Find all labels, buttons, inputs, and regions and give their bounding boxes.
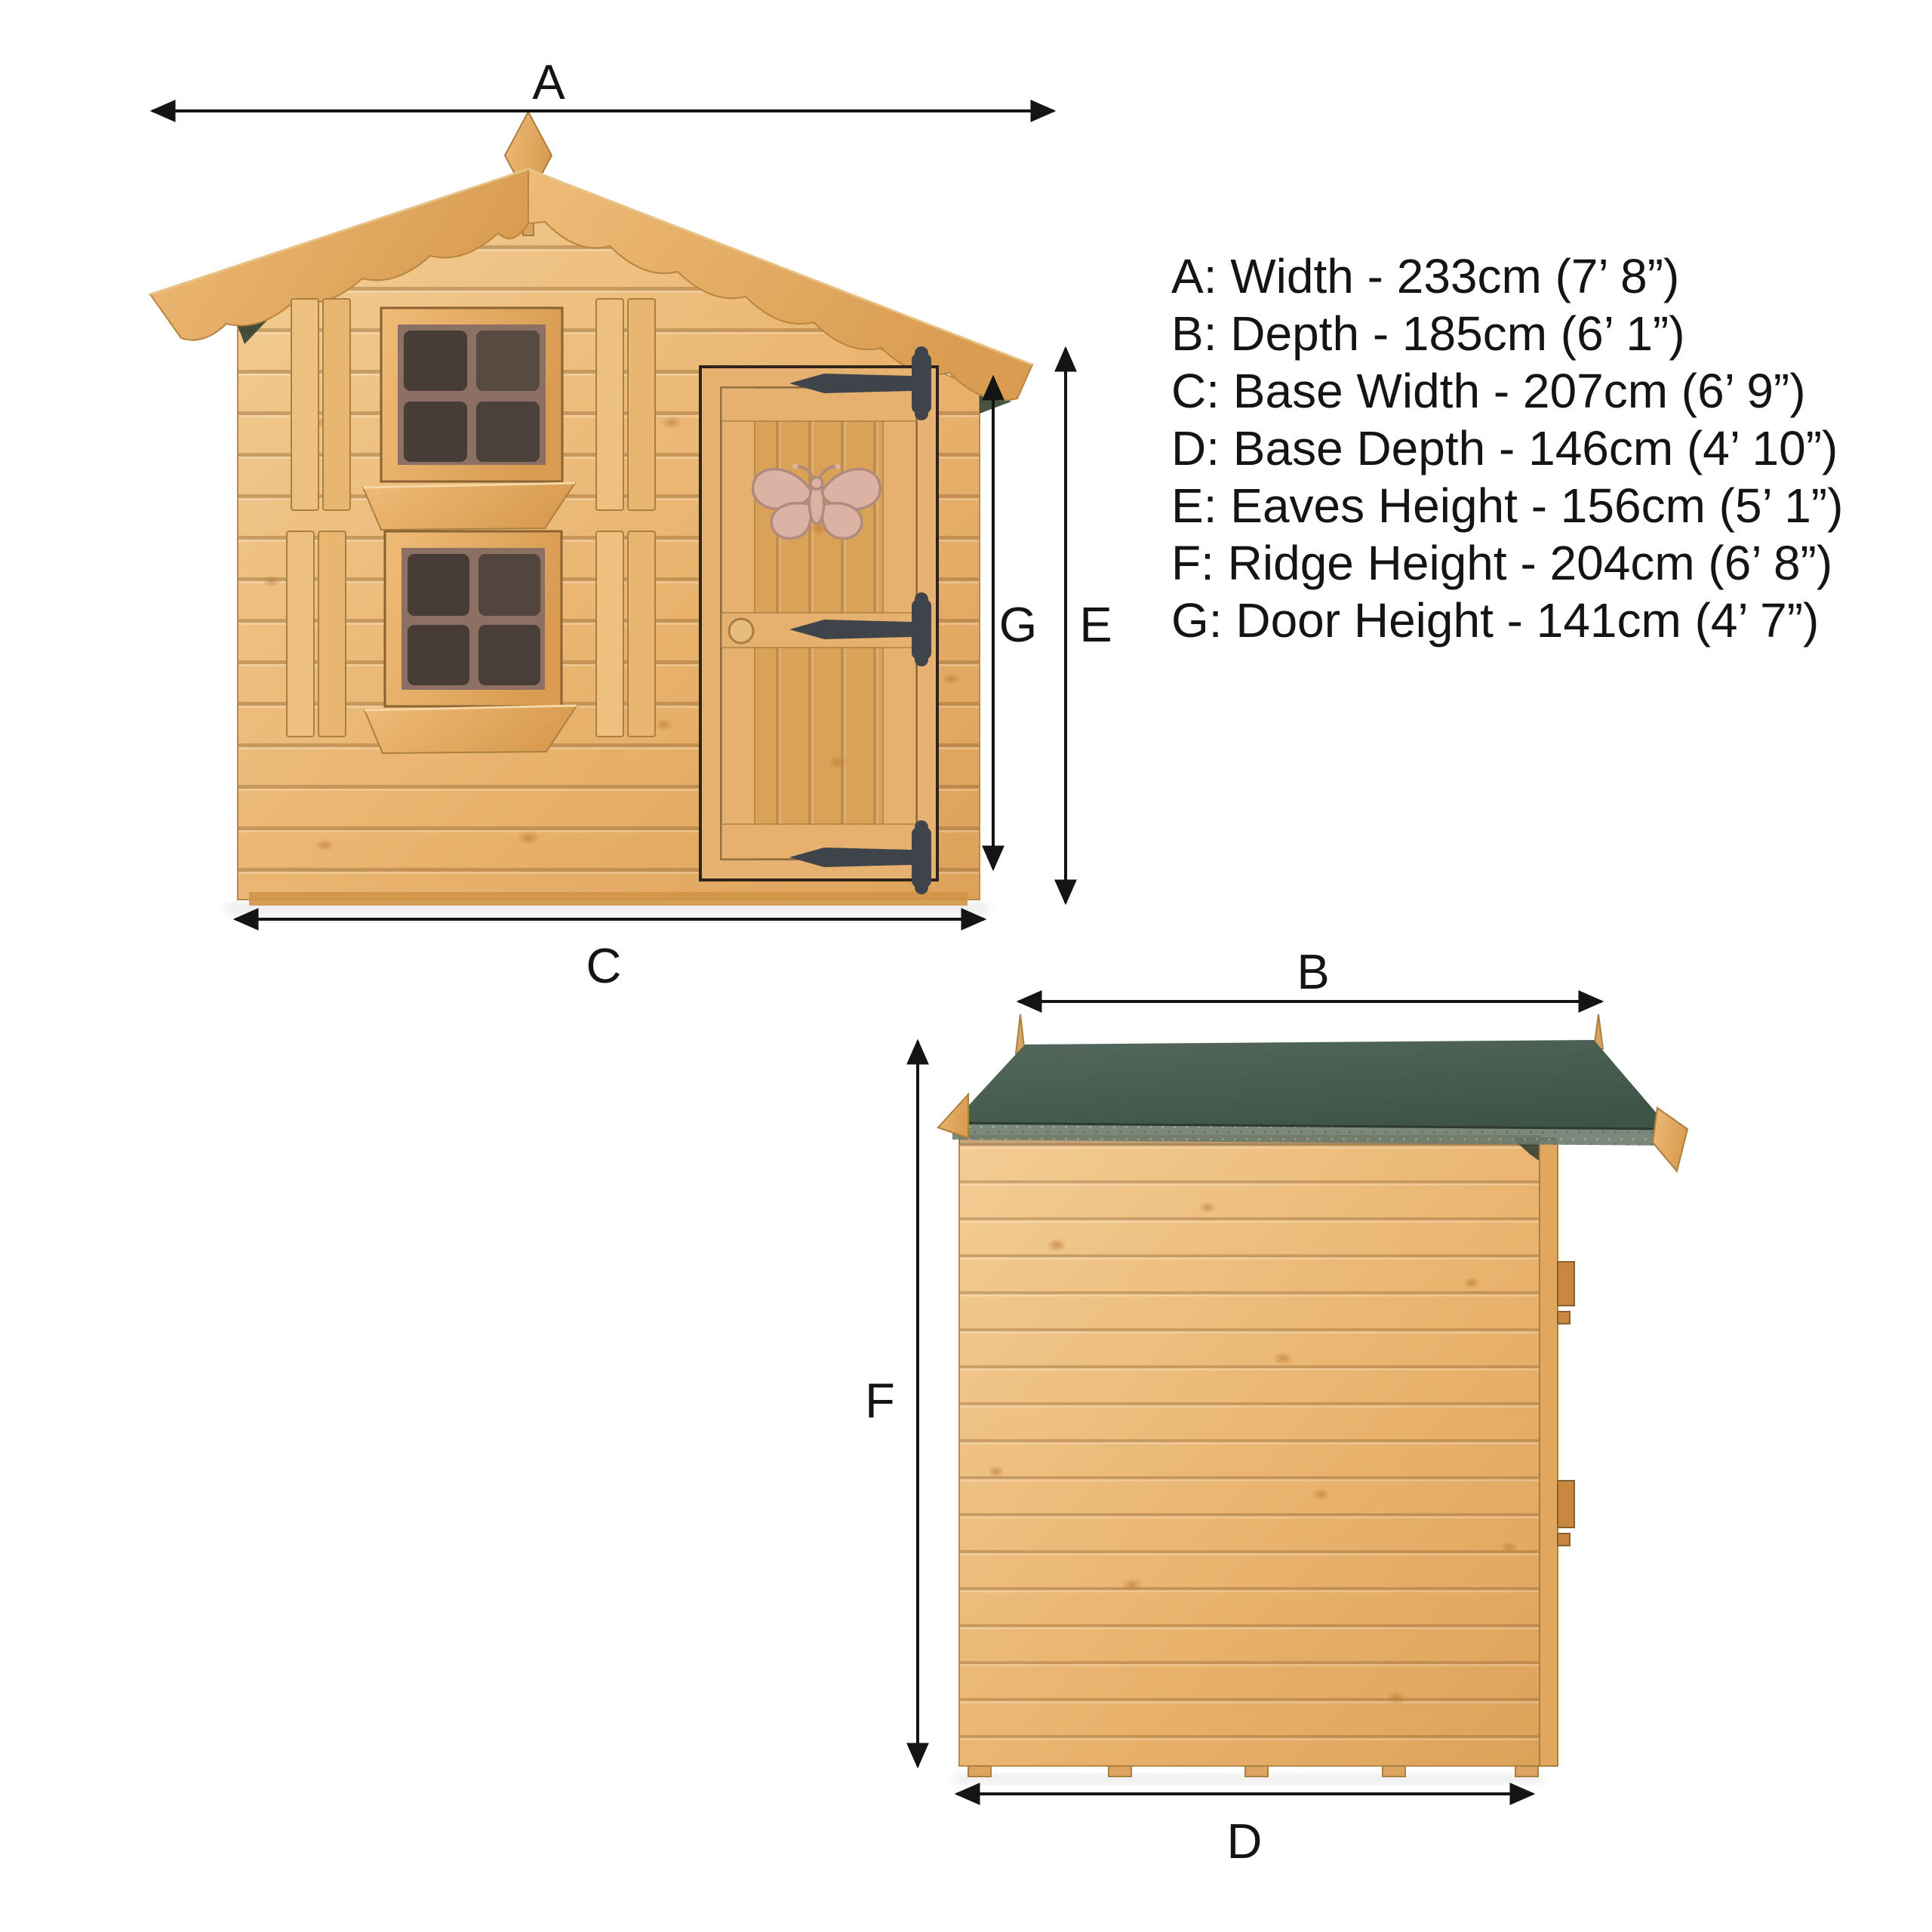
door-knob	[729, 619, 753, 643]
upper-window-shutter-left-plank	[291, 299, 318, 510]
legend-line-e: E: Eaves Height - 156cm (5’ 1”)	[1171, 477, 1843, 534]
side-windowbox-edge-upper	[1558, 1312, 1570, 1324]
door-knot	[828, 755, 848, 769]
legend-line-f: F: Ridge Height - 204cm (6’ 8”)	[1171, 534, 1843, 592]
side-shutter-edge-lower	[1558, 1481, 1574, 1527]
lower-window-shutter-right-plank	[596, 531, 623, 737]
front-base-skid	[249, 892, 968, 906]
upper-window-pane	[476, 401, 540, 462]
side-wall-cladding	[959, 1136, 1540, 1766]
legend-line-c: C: Base Width - 207cm (6’ 9”)	[1171, 362, 1843, 420]
lower-window-shutter-right-plank	[628, 531, 655, 737]
legend-line-g: G: Door Height - 141cm (4’ 7”)	[1171, 592, 1843, 649]
upper-window-shutter-right-plank	[596, 299, 623, 510]
lower-window-pane	[408, 554, 469, 616]
lower-window-pane	[408, 625, 469, 685]
side-front-corner-trim	[1540, 1141, 1558, 1766]
dim-label-c: C	[586, 938, 622, 993]
legend-line-d: D: Base Depth - 146cm (4’ 10”)	[1171, 420, 1843, 477]
dimension-legend: A: Width - 233cm (7’ 8”) B: Depth - 185c…	[1171, 248, 1843, 649]
door-rail-top	[721, 388, 916, 421]
playhouse-dimension-diagram: A C G E	[0, 0, 1932, 1932]
side-elevation-view: B F D	[865, 944, 1687, 1869]
dim-label-d: D	[1227, 1814, 1263, 1869]
upper-window	[291, 299, 655, 530]
upper-window-shutter-right-plank	[628, 299, 655, 510]
side-roof-felt-top	[952, 1040, 1670, 1129]
upper-window-pane	[404, 331, 467, 391]
lower-window-shutter-left-plank	[318, 531, 346, 737]
side-roof-bargeboard-front	[1653, 1108, 1687, 1171]
door	[700, 346, 937, 894]
lower-window-pane	[478, 625, 540, 685]
dim-label-b: B	[1297, 944, 1329, 999]
side-shutter-edge-upper	[1558, 1262, 1574, 1306]
upper-window-box	[363, 483, 575, 530]
upper-window-pane	[476, 331, 540, 391]
lower-window-box	[365, 706, 577, 753]
dim-label-g: G	[999, 597, 1038, 652]
dim-label-e: E	[1079, 597, 1112, 652]
side-roof-wood-tip-back	[938, 1094, 968, 1138]
upper-window-shutter-left-plank	[323, 299, 350, 510]
legend-line-b: B: Depth - 185cm (6’ 1”)	[1171, 305, 1843, 362]
upper-window-pane	[404, 401, 467, 462]
lower-window-shutter-left-plank	[287, 531, 314, 737]
lower-window	[287, 531, 655, 753]
legend-line-a: A: Width - 233cm (7’ 8”)	[1171, 248, 1843, 305]
side-windowbox-edge-lower	[1558, 1534, 1570, 1546]
dim-label-f: F	[865, 1373, 895, 1428]
front-elevation-view: A C G E	[150, 54, 1112, 993]
dim-label-a: A	[532, 54, 565, 109]
lower-window-pane	[478, 554, 540, 616]
